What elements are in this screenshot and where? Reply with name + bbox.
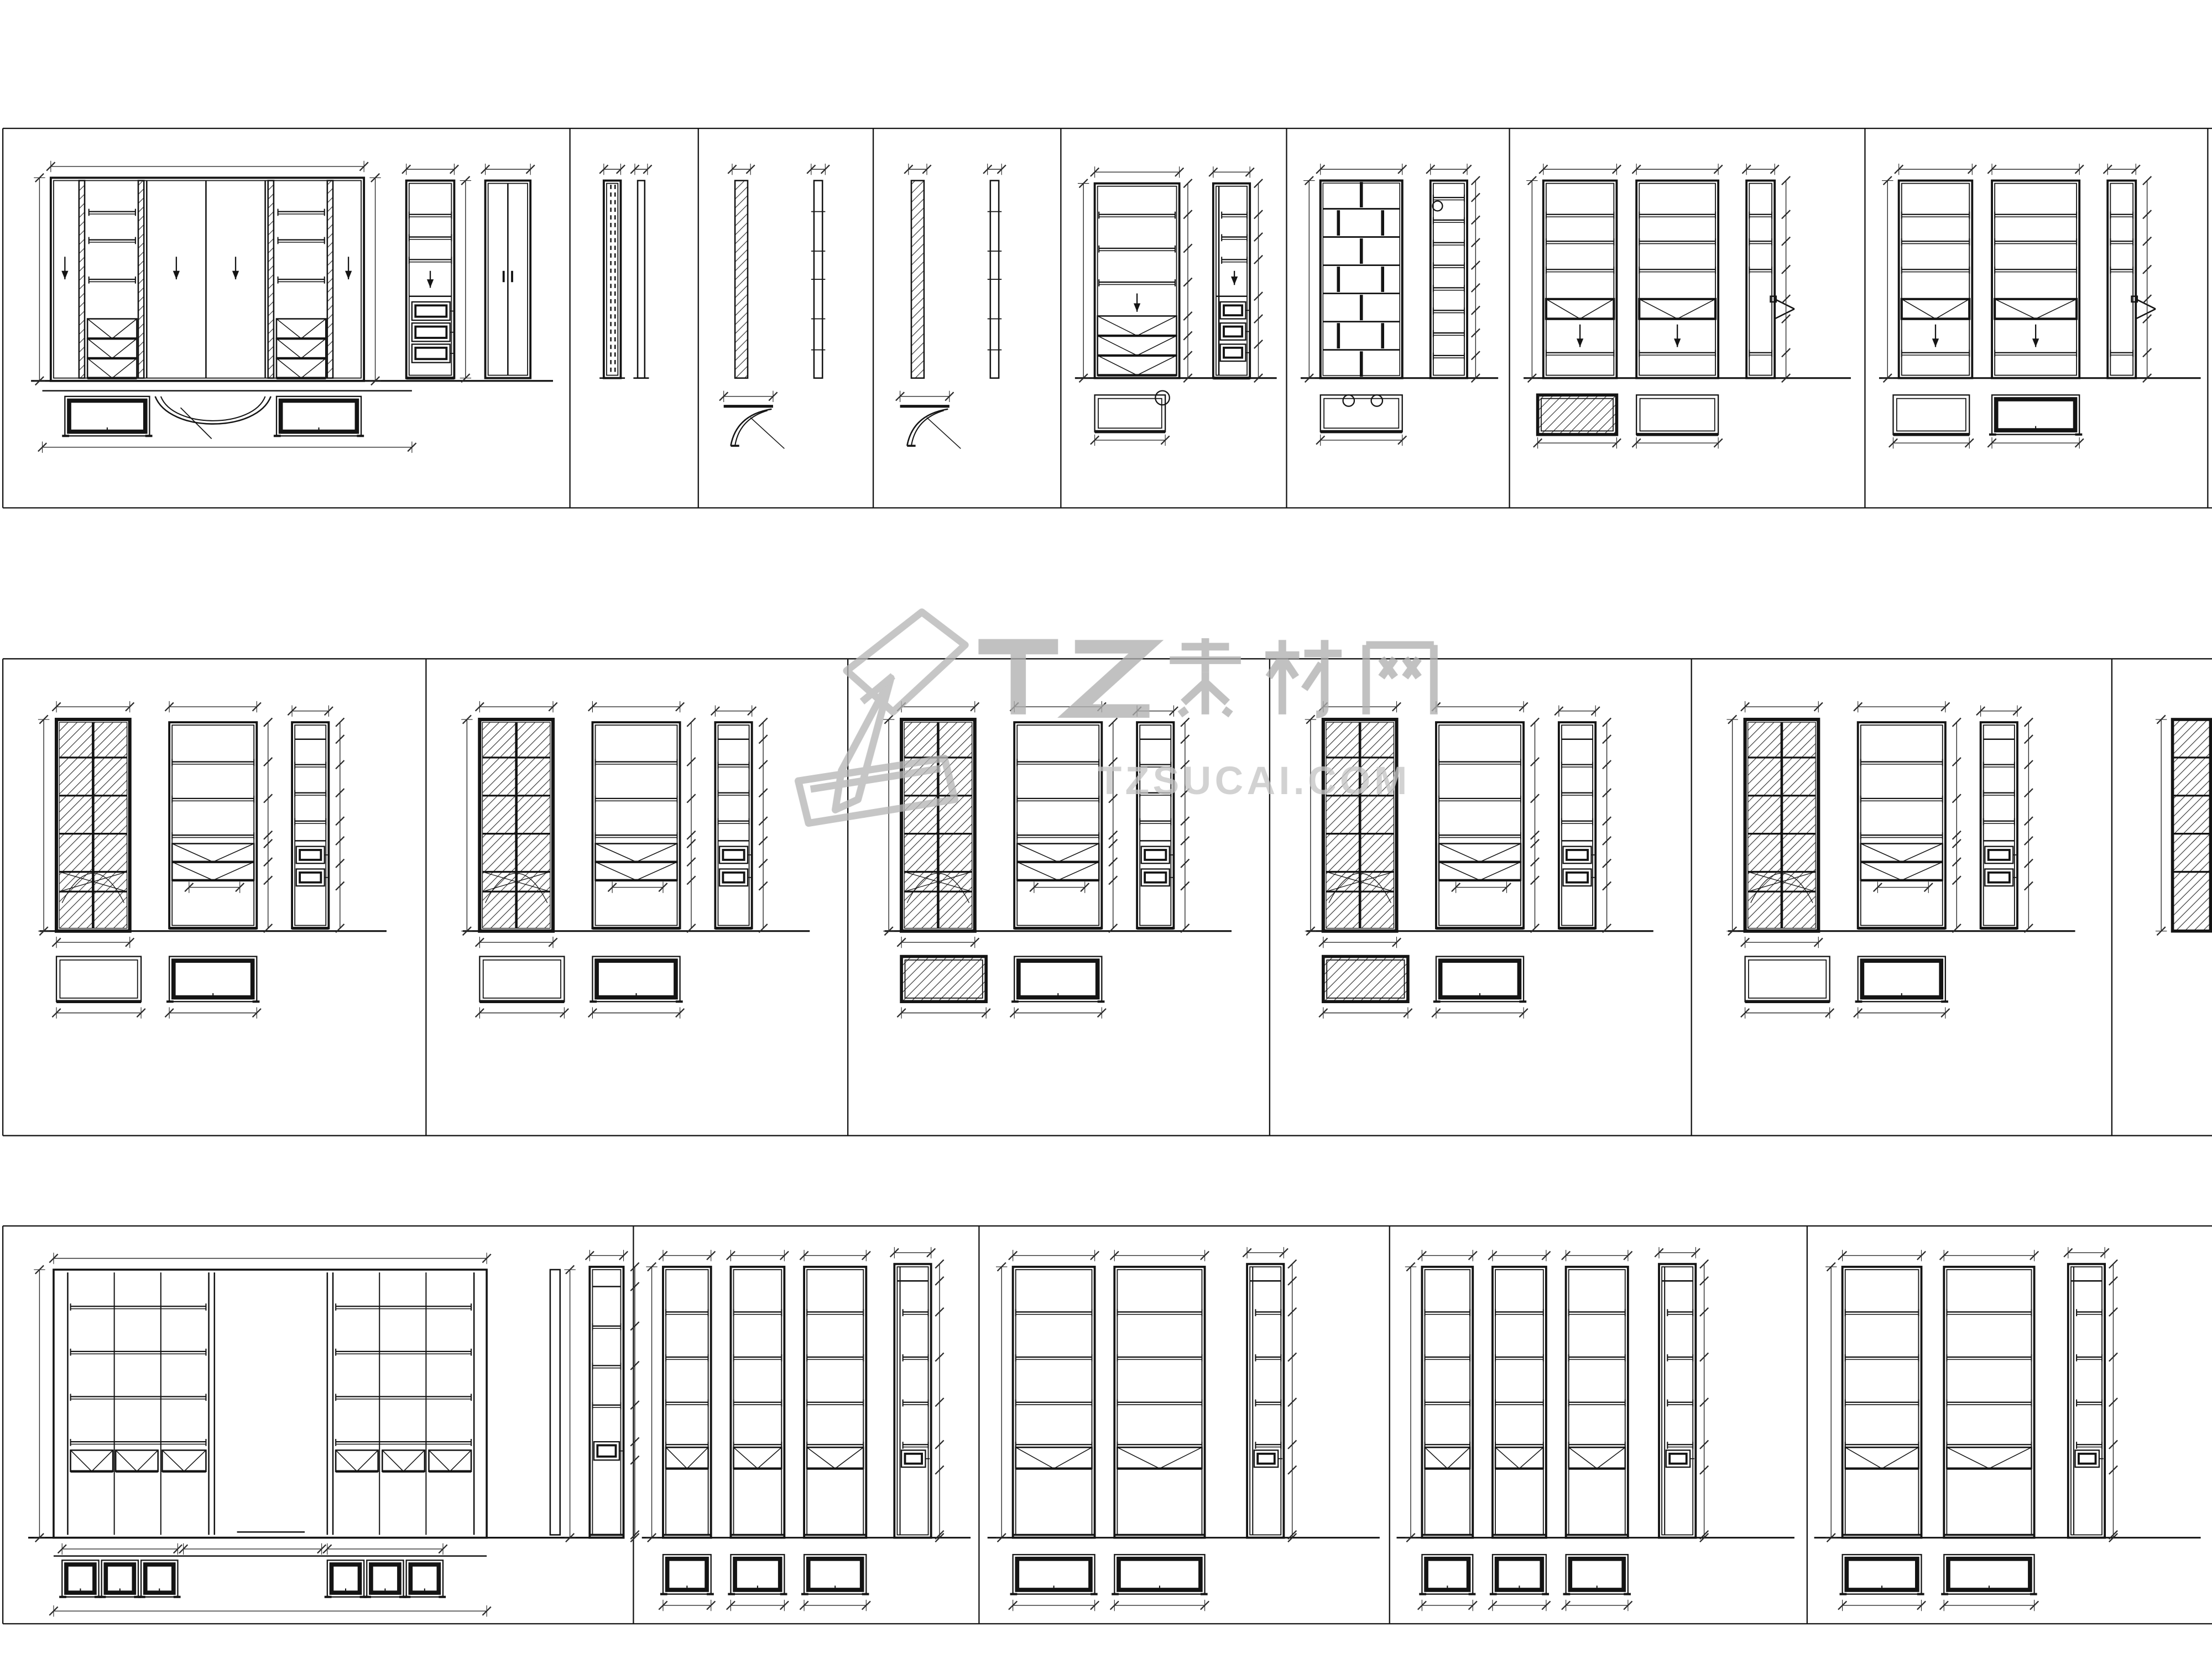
cad-rect <box>268 181 274 378</box>
hatched-panel <box>79 181 85 378</box>
hatched-panel <box>735 181 748 378</box>
cad-rect <box>901 957 986 1002</box>
cad-rect <box>138 181 144 378</box>
watermark-domain-text: TZSUCAI.COM <box>1098 759 1411 803</box>
hatched-panel <box>268 181 274 378</box>
plan-view-box <box>901 957 986 1002</box>
hatched-panel <box>327 181 333 378</box>
cad-rect <box>2173 719 2211 931</box>
cad-sheet: TZSUCAI.COM <box>0 0 2212 1659</box>
cad-rect <box>911 181 924 378</box>
plan-view-box <box>1538 395 1617 434</box>
plan-view-box <box>1323 957 1408 1002</box>
cad-rect <box>79 181 85 378</box>
hatched-panel <box>138 181 144 378</box>
cad-rect <box>1538 395 1617 434</box>
cad-rect <box>1323 957 1408 1002</box>
hatched-panel <box>2173 719 2211 931</box>
cad-rect <box>735 181 748 378</box>
cad-rect <box>327 181 333 378</box>
hatched-panel <box>911 181 924 378</box>
